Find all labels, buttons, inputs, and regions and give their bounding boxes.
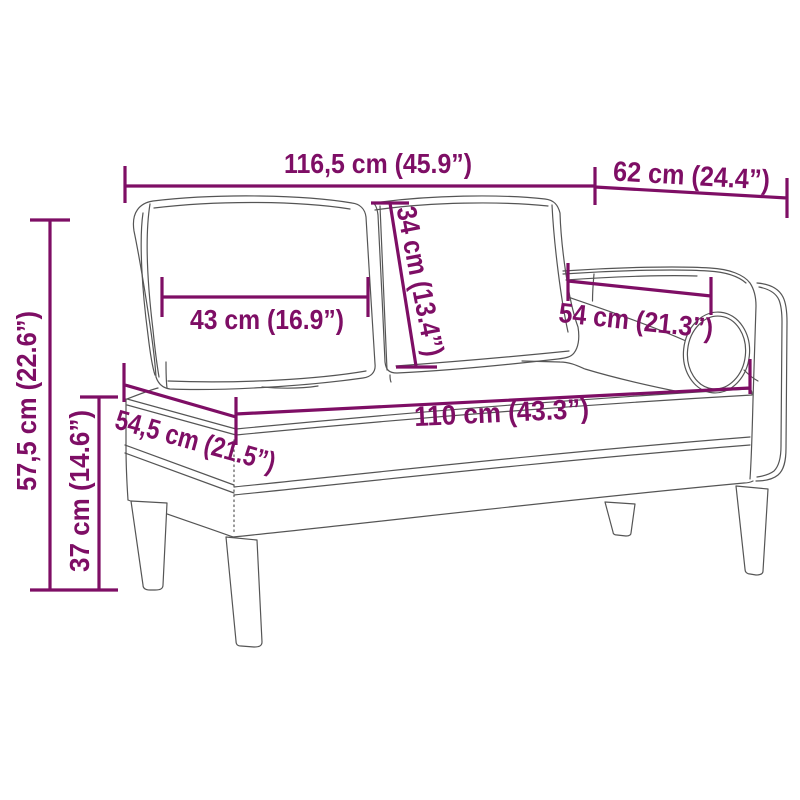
svg-text:54,5 cm (21.5”): 54,5 cm (21.5”) — [112, 404, 279, 478]
svg-text:37 cm (14.6”): 37 cm (14.6”) — [64, 410, 95, 572]
svg-text:54 cm (21.3”): 54 cm (21.3”) — [557, 297, 714, 344]
svg-text:110 cm (43.3”): 110 cm (43.3”) — [413, 393, 589, 432]
svg-text:116,5 cm (45.9”): 116,5 cm (45.9”) — [284, 148, 472, 179]
svg-text:43 cm (16.9”): 43 cm (16.9”) — [190, 304, 344, 335]
svg-text:57,5 cm (22.6”): 57,5 cm (22.6”) — [11, 311, 42, 491]
